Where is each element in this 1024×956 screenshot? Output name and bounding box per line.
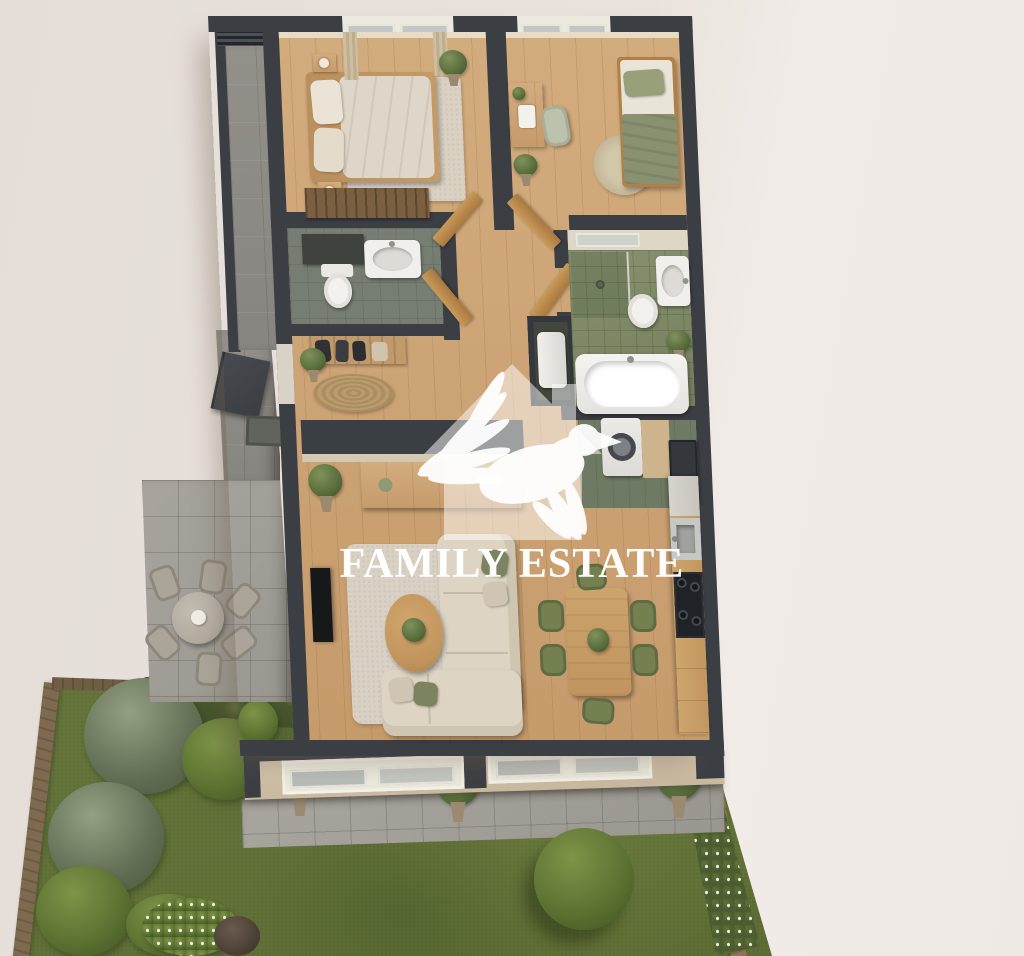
single-bed <box>617 57 681 187</box>
plant-pot <box>519 174 534 186</box>
decor-item <box>378 478 393 492</box>
wall-face-bedroom2 <box>506 32 679 38</box>
nightstand <box>312 54 337 72</box>
bed2-pillow <box>623 69 666 98</box>
outdoor-chair <box>195 651 223 687</box>
dining-chair <box>629 600 656 632</box>
living-plant <box>308 464 344 512</box>
entry-jute-rug <box>313 374 395 412</box>
faucet <box>389 241 395 247</box>
dining-centerpiece <box>587 628 610 652</box>
double-bed <box>305 72 440 182</box>
seat-seam <box>446 652 508 654</box>
curtain <box>343 32 359 80</box>
plant-pot <box>446 74 463 86</box>
plant-leaves <box>666 330 691 352</box>
coffee-table-plant <box>401 618 426 642</box>
throw-pillow-olive <box>413 681 438 707</box>
frosted-window <box>575 233 640 247</box>
bed2-blanket <box>621 114 679 184</box>
bathroom1-sink <box>364 240 422 278</box>
bedroom1-plant <box>438 50 468 86</box>
window-glass <box>574 755 641 775</box>
toilet-round <box>627 294 658 328</box>
sink-basin <box>372 247 413 271</box>
plant-pot <box>317 496 336 512</box>
floor-plan-render: FAMILY ESTATE <box>0 0 1024 956</box>
table-lamp <box>319 58 329 68</box>
bathroom2-sink <box>655 256 690 306</box>
dining-chair <box>631 644 658 676</box>
desk-plant <box>512 87 526 100</box>
wall-bottom <box>240 740 725 756</box>
wall-bedroom2-south <box>569 215 688 231</box>
desk <box>508 83 545 147</box>
teapot <box>191 610 206 625</box>
burner <box>678 610 688 620</box>
bed-pillow <box>314 127 344 173</box>
bathroom2-north-wall <box>567 230 688 250</box>
toilet-bowl <box>323 274 352 308</box>
bed-pillow <box>310 79 344 125</box>
plant-leaves <box>513 154 538 176</box>
facade-pier-left <box>243 753 260 798</box>
toilet <box>321 264 355 310</box>
dining-chair <box>537 600 564 632</box>
window-glass <box>290 768 367 789</box>
faucet <box>682 278 688 284</box>
throw-pillow <box>387 676 415 703</box>
plant-pot <box>306 370 321 382</box>
bathroom1-vanity <box>302 234 365 264</box>
plant-leaves <box>438 50 467 76</box>
brand-wordmark: FAMILY ESTATE <box>312 540 712 588</box>
wardrobe <box>305 188 430 218</box>
hanging-bag <box>371 342 388 361</box>
brand-logo-house-dove-icon <box>392 358 692 558</box>
laptop <box>518 105 536 128</box>
wall-face-bedroom1 <box>279 32 486 38</box>
window-glass <box>378 765 455 786</box>
burner <box>691 616 701 626</box>
shower-zone <box>570 252 631 318</box>
sofa-bottom <box>381 670 524 736</box>
outdoor-chair <box>198 558 228 595</box>
entry-plant <box>299 348 326 382</box>
hanging-coat <box>336 340 349 363</box>
plant-leaves <box>299 348 326 372</box>
hanging-coat <box>352 341 367 361</box>
dining-chair <box>539 644 566 676</box>
dining-table <box>565 588 632 696</box>
duvet <box>339 76 435 178</box>
window-glass <box>496 757 563 777</box>
plant-leaves <box>308 464 343 498</box>
entry-doorway <box>276 344 295 404</box>
dining-chair <box>582 697 615 726</box>
patio-window-left <box>282 755 465 795</box>
shower-drain <box>596 280 605 289</box>
outdoor-table <box>172 592 224 644</box>
bedroom2-floor-plant <box>513 154 538 186</box>
